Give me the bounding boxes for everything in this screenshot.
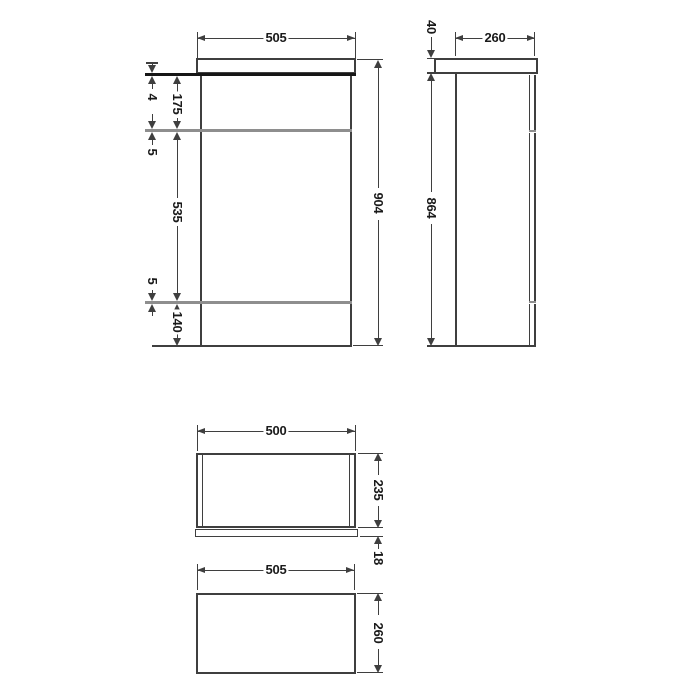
side-countertop [434,58,538,74]
dim-arrow [374,520,382,528]
dim-line [177,140,178,198]
dim-label-front-plinth: 140 [170,309,184,334]
dim-arrow [347,428,355,434]
side-body-back-edge [455,73,457,347]
dim-arrow [374,665,382,673]
dim-line [177,226,178,293]
dim-arrow [173,121,181,129]
dim-line [152,312,153,316]
dim-arrow [374,453,382,461]
dim-line-base-depth [378,649,379,665]
dim-arrow [374,593,382,601]
dim-label-side-height: 864 [424,195,438,220]
extension-line [355,425,356,451]
technical-drawing-canvas: 505 4 5 5 175 535 140 904 [0,0,700,700]
dim-arrow [148,293,156,301]
dim-label-plan-plinth: 18 [371,549,385,567]
side-door-inner-line [529,75,530,130]
dim-line [152,140,153,145]
dim-line-side-height [431,81,432,192]
dim-arrow [197,428,205,434]
dim-arrow [346,567,354,573]
dim-label-front-middle: 535 [170,199,184,224]
dim-arrow [374,536,382,544]
dim-arrow [173,132,181,140]
dim-arrow [148,121,156,129]
side-door-outer-line [534,304,536,345]
side-body-bottom-edge [427,345,536,347]
base-outline [196,593,356,674]
dim-arrow [347,35,355,41]
dim-arrow [374,338,382,346]
dim-label-front-shelf-b: 5 [145,275,159,286]
dim-arrow [197,567,205,573]
dim-label-plan-width: 500 [263,424,288,438]
dim-arrow [455,35,463,41]
side-door-divider [529,301,536,303]
dim-arrow [173,76,181,84]
dim-line [152,114,153,121]
dim-label-side-worktop: 40 [424,18,438,36]
extension-line [427,58,434,59]
plan-side-panel-right [349,454,350,527]
plan-plinth-strip [195,529,358,537]
dim-label-base-depth: 260 [371,620,385,645]
side-door-inner-line [529,304,530,345]
dim-label-front-upper: 175 [170,91,184,116]
side-door-outer-line [534,75,536,130]
dim-line [431,37,432,50]
dim-arrow [427,73,435,81]
dim-line-plan-depth [378,461,379,475]
dim-arrow [374,60,382,68]
dim-arrow [173,338,181,346]
side-door-inner-line [529,133,530,301]
plan-outline [196,453,356,528]
dim-line-side-height [431,224,432,338]
dim-arrow [148,132,156,140]
dim-line [152,84,153,89]
side-door-divider [529,130,536,132]
side-door-outer-line [534,133,536,301]
dim-arrow [527,35,535,41]
extension-line [354,564,355,590]
dim-label-side-depth: 260 [482,31,507,45]
extension-line [355,32,356,58]
dim-arrow [427,50,435,58]
front-body-outline [200,76,352,347]
dim-label-front-shelf-a: 5 [145,146,159,157]
dim-arrow [148,76,156,84]
dim-line-front-height [378,220,379,338]
dim-label-front-gap: 4 [145,91,159,102]
front-countertop [196,58,356,74]
dim-line-base-depth [378,601,379,615]
dim-label-front-width: 505 [263,31,288,45]
dim-arrow [173,293,181,301]
dim-arrow [427,338,435,346]
dim-arrow [148,304,156,312]
dim-label-front-height: 904 [371,190,385,215]
dim-label-plan-depth: 235 [371,477,385,502]
dim-arrow [148,65,156,73]
dim-label-base-width: 505 [263,563,288,577]
dim-line-plan-depth [378,506,379,520]
dim-line-front-height [378,68,379,188]
plan-side-panel-left [202,454,203,527]
dim-arrow [197,35,205,41]
